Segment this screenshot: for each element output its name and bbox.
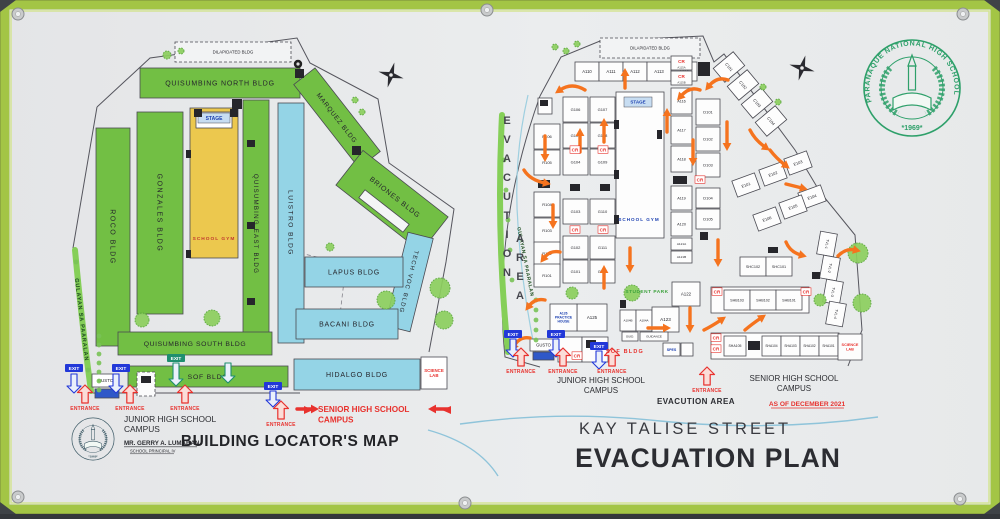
cr-label: CR — [803, 290, 810, 295]
building-block — [190, 108, 238, 258]
vertical-letter: T — [504, 210, 511, 222]
vertical-letter: E — [503, 115, 510, 127]
vertical-letter: A — [516, 233, 524, 245]
label-line: G101 — [571, 269, 582, 274]
stair-block — [600, 184, 610, 191]
junior-campus-label-left-line2: CAMPUS — [124, 424, 160, 434]
label-line: R105 — [542, 160, 552, 165]
label-line: G102 — [571, 245, 582, 250]
building-label-dilapidated-bldg: DILAPIDATED BLDG — [213, 50, 254, 55]
label-line: D105 — [703, 216, 713, 221]
exit-label: EXIT — [551, 332, 562, 338]
building-label-cr: CR — [678, 74, 685, 79]
building-label-a125: A125 — [587, 315, 598, 320]
label-line: R101 — [542, 273, 552, 278]
building-label-sha101: SHA101 — [822, 344, 834, 348]
label-line: D104 — [703, 195, 713, 200]
label-line: SHC101 — [772, 265, 786, 269]
building-label-a110: A110 — [582, 69, 592, 74]
building-label-a104b: A104B — [623, 319, 632, 323]
building-label-g111: G111 — [598, 245, 608, 250]
building-label-bacani-bldg: BACANI BLDG — [319, 321, 375, 328]
building-label-g107: G107 — [598, 107, 609, 112]
building-label-g102: G102 — [571, 245, 582, 250]
label-line: SHA104 — [765, 344, 777, 348]
building-label-spes: SPES — [667, 348, 677, 352]
building-label-a120: A120 — [677, 222, 686, 226]
entrance-label: ENTRANCE — [70, 406, 100, 412]
label-line: A125 — [587, 315, 598, 320]
post-ring-center — [296, 62, 299, 65]
tree-icon — [853, 294, 871, 312]
grommet-hole — [961, 12, 966, 17]
label-line: A117 — [677, 128, 686, 132]
entrance-label: ENTRANCE — [266, 422, 296, 428]
exit-label: EXIT — [69, 366, 80, 372]
shrub-dot — [97, 361, 102, 366]
stair-block — [247, 222, 255, 229]
label-line: G106 — [571, 107, 582, 112]
label-line: A104B — [623, 319, 632, 323]
building-label-shb103: SHB103 — [730, 298, 744, 302]
cr-label: CR — [574, 354, 581, 359]
label-line: G103 — [571, 209, 582, 214]
building-block — [533, 352, 554, 360]
shrub-dot — [97, 334, 102, 339]
label-line: HIDALGO BLDG — [326, 372, 388, 379]
vertical-letter: A — [516, 290, 524, 302]
building-label-g101: G101 — [571, 269, 582, 274]
building-label-a121a: A121A — [677, 242, 687, 246]
building-label-a118: A118 — [677, 157, 686, 161]
label-line: GUSTO — [536, 342, 552, 347]
building-block — [681, 343, 693, 356]
tree-icon — [566, 287, 578, 299]
exit-label: EXIT — [268, 384, 279, 390]
label-line: D101 — [703, 109, 713, 114]
stair-block — [812, 272, 820, 279]
cr-label: CR — [600, 148, 607, 153]
stair-block — [186, 150, 191, 158]
building-label-quisumbing-north-bldg: QUISUMBING NORTH BLDG — [165, 80, 275, 87]
stair-block — [614, 120, 619, 129]
evacuation-plan-title: EVACUATION PLAN — [575, 443, 841, 473]
label-line: DILAPIDATED BLDG — [630, 45, 670, 50]
label-line: LUISTRO BLDG — [287, 190, 294, 256]
exit-label: EXIT — [116, 366, 127, 372]
tree-icon — [552, 44, 558, 50]
stair-block — [247, 298, 255, 305]
building-block — [137, 372, 155, 396]
shrub-dot — [97, 343, 102, 348]
stair-block — [614, 170, 619, 179]
entrance-label: ENTRANCE — [506, 369, 536, 375]
label-line: A110 — [582, 69, 592, 74]
label-line: CR — [678, 59, 685, 64]
stair-block — [194, 109, 202, 117]
label-line: A119 — [677, 196, 686, 200]
label-line: G104 — [571, 159, 582, 164]
stair-block — [540, 100, 548, 106]
building-locator-title: BUILDING LOCATOR'S MAP — [181, 433, 399, 450]
tree-icon — [563, 48, 569, 54]
tree-icon — [359, 109, 365, 115]
cr-label: CR — [714, 290, 721, 295]
vertical-letter: E — [516, 271, 523, 283]
cr-label: CR — [600, 228, 607, 233]
shrub-dot — [534, 338, 539, 343]
evacuation-area-label: EVACUTION AREA — [657, 397, 735, 406]
label-line: SHA101 — [822, 344, 834, 348]
vertical-letter: A — [503, 153, 511, 165]
building-label-r101: R101 — [542, 273, 552, 278]
building-label-quisumbing-south-bldg: QUISUMBING SOUTH BLDG — [144, 341, 246, 348]
building-label-sha102: SHA102 — [803, 344, 815, 348]
senior-campus-label-left-line1: SENIOR HIGH SCHOOL — [318, 405, 409, 414]
stair-block — [247, 140, 255, 147]
exit-label: EXIT — [508, 332, 519, 338]
vertical-letter: O — [503, 248, 512, 260]
building-label-g104: G104 — [571, 159, 582, 164]
tree-icon — [178, 48, 184, 54]
label-line: LAB — [846, 348, 854, 352]
tree-icon — [204, 310, 220, 326]
shrub-dot — [74, 260, 79, 265]
junior-campus-label-right-line1: JUNIOR HIGH SCHOOL — [557, 376, 646, 385]
entrance-label: ENTRANCE — [115, 406, 145, 412]
building-label-a119: A119 — [677, 196, 686, 200]
shrub-dot — [534, 328, 539, 333]
building-label-cr: CR — [678, 59, 685, 64]
building-label-d104: D104 — [703, 195, 713, 200]
logo-year: *1969* — [88, 454, 98, 458]
map-label-sof-bldg: SOF BLDG — [606, 349, 644, 355]
map-label-a115a: A115A — [677, 66, 685, 70]
building-label-luistro-bldg: LUISTRO BLDG — [287, 190, 294, 256]
tree-icon — [430, 278, 450, 298]
label-line: A111 — [606, 69, 616, 74]
label-line: A121B — [677, 255, 686, 259]
building-label-gusto: GUSTO — [536, 342, 552, 347]
cr-label: CR — [713, 347, 720, 352]
building-label-sha105: SHA105 — [728, 344, 741, 348]
label-line: DILAPIDATED BLDG — [213, 50, 254, 55]
stair-block — [657, 130, 662, 139]
compass-center — [800, 66, 804, 70]
label-line: R103 — [542, 228, 552, 233]
logo-year: *1969* — [901, 125, 922, 132]
building-label-sha104: SHA104 — [765, 344, 777, 348]
building-label-a104a: A104A — [639, 319, 648, 323]
label-line: GUIDANCE — [646, 335, 662, 339]
school-banner: DILAPIDATED BLDGQUISUMBING NORTH BLDGMAR… — [0, 0, 1000, 514]
shrub-dot — [97, 388, 102, 393]
tree-icon — [352, 97, 358, 103]
building-label-stage: STAGE — [206, 116, 224, 122]
label-line: G107 — [598, 107, 609, 112]
building-label-d105: D105 — [703, 216, 713, 221]
building-label-a117: A117 — [677, 128, 686, 132]
cr-label: CR — [572, 228, 579, 233]
tree-icon — [574, 41, 580, 47]
building-label-shb101: SHB101 — [782, 298, 796, 302]
label-line: GUID. — [626, 335, 635, 339]
building-label-lapus-bldg: LAPUS BLDG — [328, 269, 380, 276]
label-line: A120 — [677, 222, 686, 226]
label-line: A104A — [639, 319, 648, 323]
building-label-a112: A112 — [630, 69, 640, 74]
building-label-roco-bldg: ROCO BLDG — [109, 209, 116, 265]
stair-block — [700, 232, 708, 240]
stair-block — [673, 176, 687, 184]
label-line: G109 — [598, 159, 609, 164]
building-label-r105: R105 — [542, 160, 552, 165]
stair-block — [698, 62, 710, 76]
vertical-letter: R — [516, 252, 524, 264]
label-line: GONZALES BLDG — [156, 174, 163, 253]
building-label-d102: D102 — [703, 136, 713, 141]
entrance-label: ENTRANCE — [170, 406, 200, 412]
building-label-d101: D101 — [703, 109, 713, 114]
map-label-a115b: A115B — [677, 81, 685, 85]
building-label-guidance: GUIDANCE — [646, 335, 662, 339]
vertical-letter: U — [503, 191, 511, 203]
exit-label: EXIT — [171, 356, 182, 362]
cr-label: CR — [713, 336, 720, 341]
building-label-g110: G110 — [598, 209, 608, 214]
street-name: KAY TALISE STREET — [579, 420, 791, 438]
building-label-g103: G103 — [571, 209, 582, 214]
map-label-school-gym: SCHOOL GYM — [618, 217, 659, 222]
building-label-shb102: SHB102 — [756, 298, 770, 302]
label-line: BACANI BLDG — [319, 321, 375, 328]
building-label-a121b: A121B — [677, 255, 686, 259]
vertical-letter: C — [503, 172, 511, 184]
building-label-r103: R103 — [542, 228, 552, 233]
building-label-gonzales-bldg: GONZALES BLDG — [156, 174, 163, 253]
principal-title: SCHOOL PRINCIPAL IV — [130, 449, 176, 454]
tree-icon — [135, 313, 149, 327]
label-line: SHB101 — [782, 298, 796, 302]
grommet-hole — [485, 8, 490, 13]
label-line: CR — [678, 74, 685, 79]
label-line: SHA102 — [803, 344, 815, 348]
as-of-date: AS OF DECEMBER 2021 — [769, 401, 846, 408]
label-line: A118 — [677, 157, 686, 161]
stair-block — [570, 184, 580, 191]
stair-block — [295, 69, 304, 78]
label-line: QUISUMBING NORTH BLDG — [165, 80, 275, 87]
tree-icon — [814, 294, 826, 306]
tree-icon — [163, 51, 171, 59]
stair-block — [352, 146, 361, 155]
senior-campus-label-right-line2: CAMPUS — [777, 384, 811, 393]
label-line: SCIENCE — [842, 343, 859, 347]
senior-campus-label-left-line2: CAMPUS — [318, 416, 354, 425]
label-line: SHA105 — [728, 344, 741, 348]
building-label-a123: A123 — [660, 317, 671, 322]
label-line: A112 — [630, 69, 640, 74]
tree-icon — [326, 243, 334, 251]
building-label-sha103: SHA103 — [784, 344, 796, 348]
label-line: A113 — [654, 69, 664, 74]
shrub-dot — [97, 352, 102, 357]
entrance-label: ENTRANCE — [548, 369, 578, 375]
stair-block — [186, 250, 191, 258]
junior-campus-label-right-line2: CAMPUS — [584, 386, 618, 395]
exit-label: EXIT — [594, 344, 605, 350]
label-line: A122 — [681, 292, 692, 297]
label-line: A123 — [660, 317, 671, 322]
shrub-dot — [534, 318, 539, 323]
vertical-letter: I — [505, 229, 508, 241]
grommet-hole — [958, 497, 963, 502]
stair-block — [768, 247, 778, 253]
compass-center — [389, 73, 393, 77]
label-line: LAB — [429, 373, 438, 378]
shrub-dot — [97, 370, 102, 375]
banner-svg: DILAPIDATED BLDGQUISUMBING NORTH BLDGMAR… — [0, 0, 1000, 514]
label-line: A121A — [677, 242, 687, 246]
building-label-g106: G106 — [571, 107, 582, 112]
label-line: G111 — [598, 245, 608, 250]
label-line: LAPUS BLDG — [328, 269, 380, 276]
grommet-hole — [463, 501, 468, 506]
label-line: HOUSE — [557, 320, 570, 324]
building-label-shc102: SHC102 — [746, 265, 760, 269]
label-line: R104 — [542, 202, 552, 207]
tree-icon — [775, 99, 781, 105]
label-line: SHB102 — [756, 298, 770, 302]
map-label-student-park: STUDENT PARK — [625, 289, 668, 295]
label-line: QUISUMBING SOUTH BLDG — [144, 341, 246, 348]
building-label-hidalgo-bldg: HIDALGO BLDG — [326, 372, 388, 379]
stair-block — [232, 99, 242, 109]
entrance-label: ENTRANCE — [597, 369, 627, 375]
stair-block — [620, 300, 626, 308]
building-label-dilapidated-bldg: DILAPIDATED BLDG — [630, 45, 670, 50]
vertical-letter: V — [503, 134, 511, 146]
label-line: D102 — [703, 136, 713, 141]
building-label-a111: A111 — [606, 69, 616, 74]
map-label-school-gym: SCHOOL GYM — [193, 236, 236, 242]
building-label-r104: R104 — [542, 202, 552, 207]
stair-block — [141, 376, 151, 383]
shrub-dot — [534, 308, 539, 313]
label-line: D103 — [703, 162, 713, 167]
label-line: STAGE — [630, 100, 645, 105]
grommet-hole — [16, 12, 21, 17]
tree-icon — [848, 243, 868, 263]
label-line: ROCO BLDG — [109, 209, 116, 265]
building-label-shc101: SHC101 — [772, 265, 786, 269]
shrub-dot — [86, 368, 91, 373]
cr-label: CR — [572, 148, 579, 153]
label-line: STAGE — [206, 116, 224, 122]
vertical-letter: N — [503, 267, 511, 279]
building-label-guid: GUID. — [626, 335, 635, 339]
label-line: SHA103 — [784, 344, 796, 348]
tree-icon — [435, 311, 453, 329]
label-line: SHC102 — [746, 265, 760, 269]
building-label-stage: STAGE — [630, 100, 645, 105]
senior-campus-label-right-line1: SENIOR HIGH SCHOOL — [750, 374, 839, 383]
label-line: SHB103 — [730, 298, 744, 302]
label-line: SPES — [667, 348, 677, 352]
stair-block — [748, 341, 760, 350]
building-label-g109: G109 — [598, 159, 609, 164]
entrance-label: ENTRANCE — [692, 388, 722, 394]
tree-icon — [377, 291, 395, 309]
stair-block — [230, 109, 238, 117]
junior-campus-label-left-line1: JUNIOR HIGH SCHOOL — [124, 414, 216, 424]
grommet-hole — [16, 495, 21, 500]
label-line: G110 — [598, 209, 608, 214]
building-label-a113: A113 — [654, 69, 664, 74]
building-label-a122: A122 — [681, 292, 692, 297]
tree-icon — [760, 84, 766, 90]
building-label-d103: D103 — [703, 162, 713, 167]
cr-label: CR — [697, 178, 704, 183]
shrub-dot — [97, 379, 102, 384]
